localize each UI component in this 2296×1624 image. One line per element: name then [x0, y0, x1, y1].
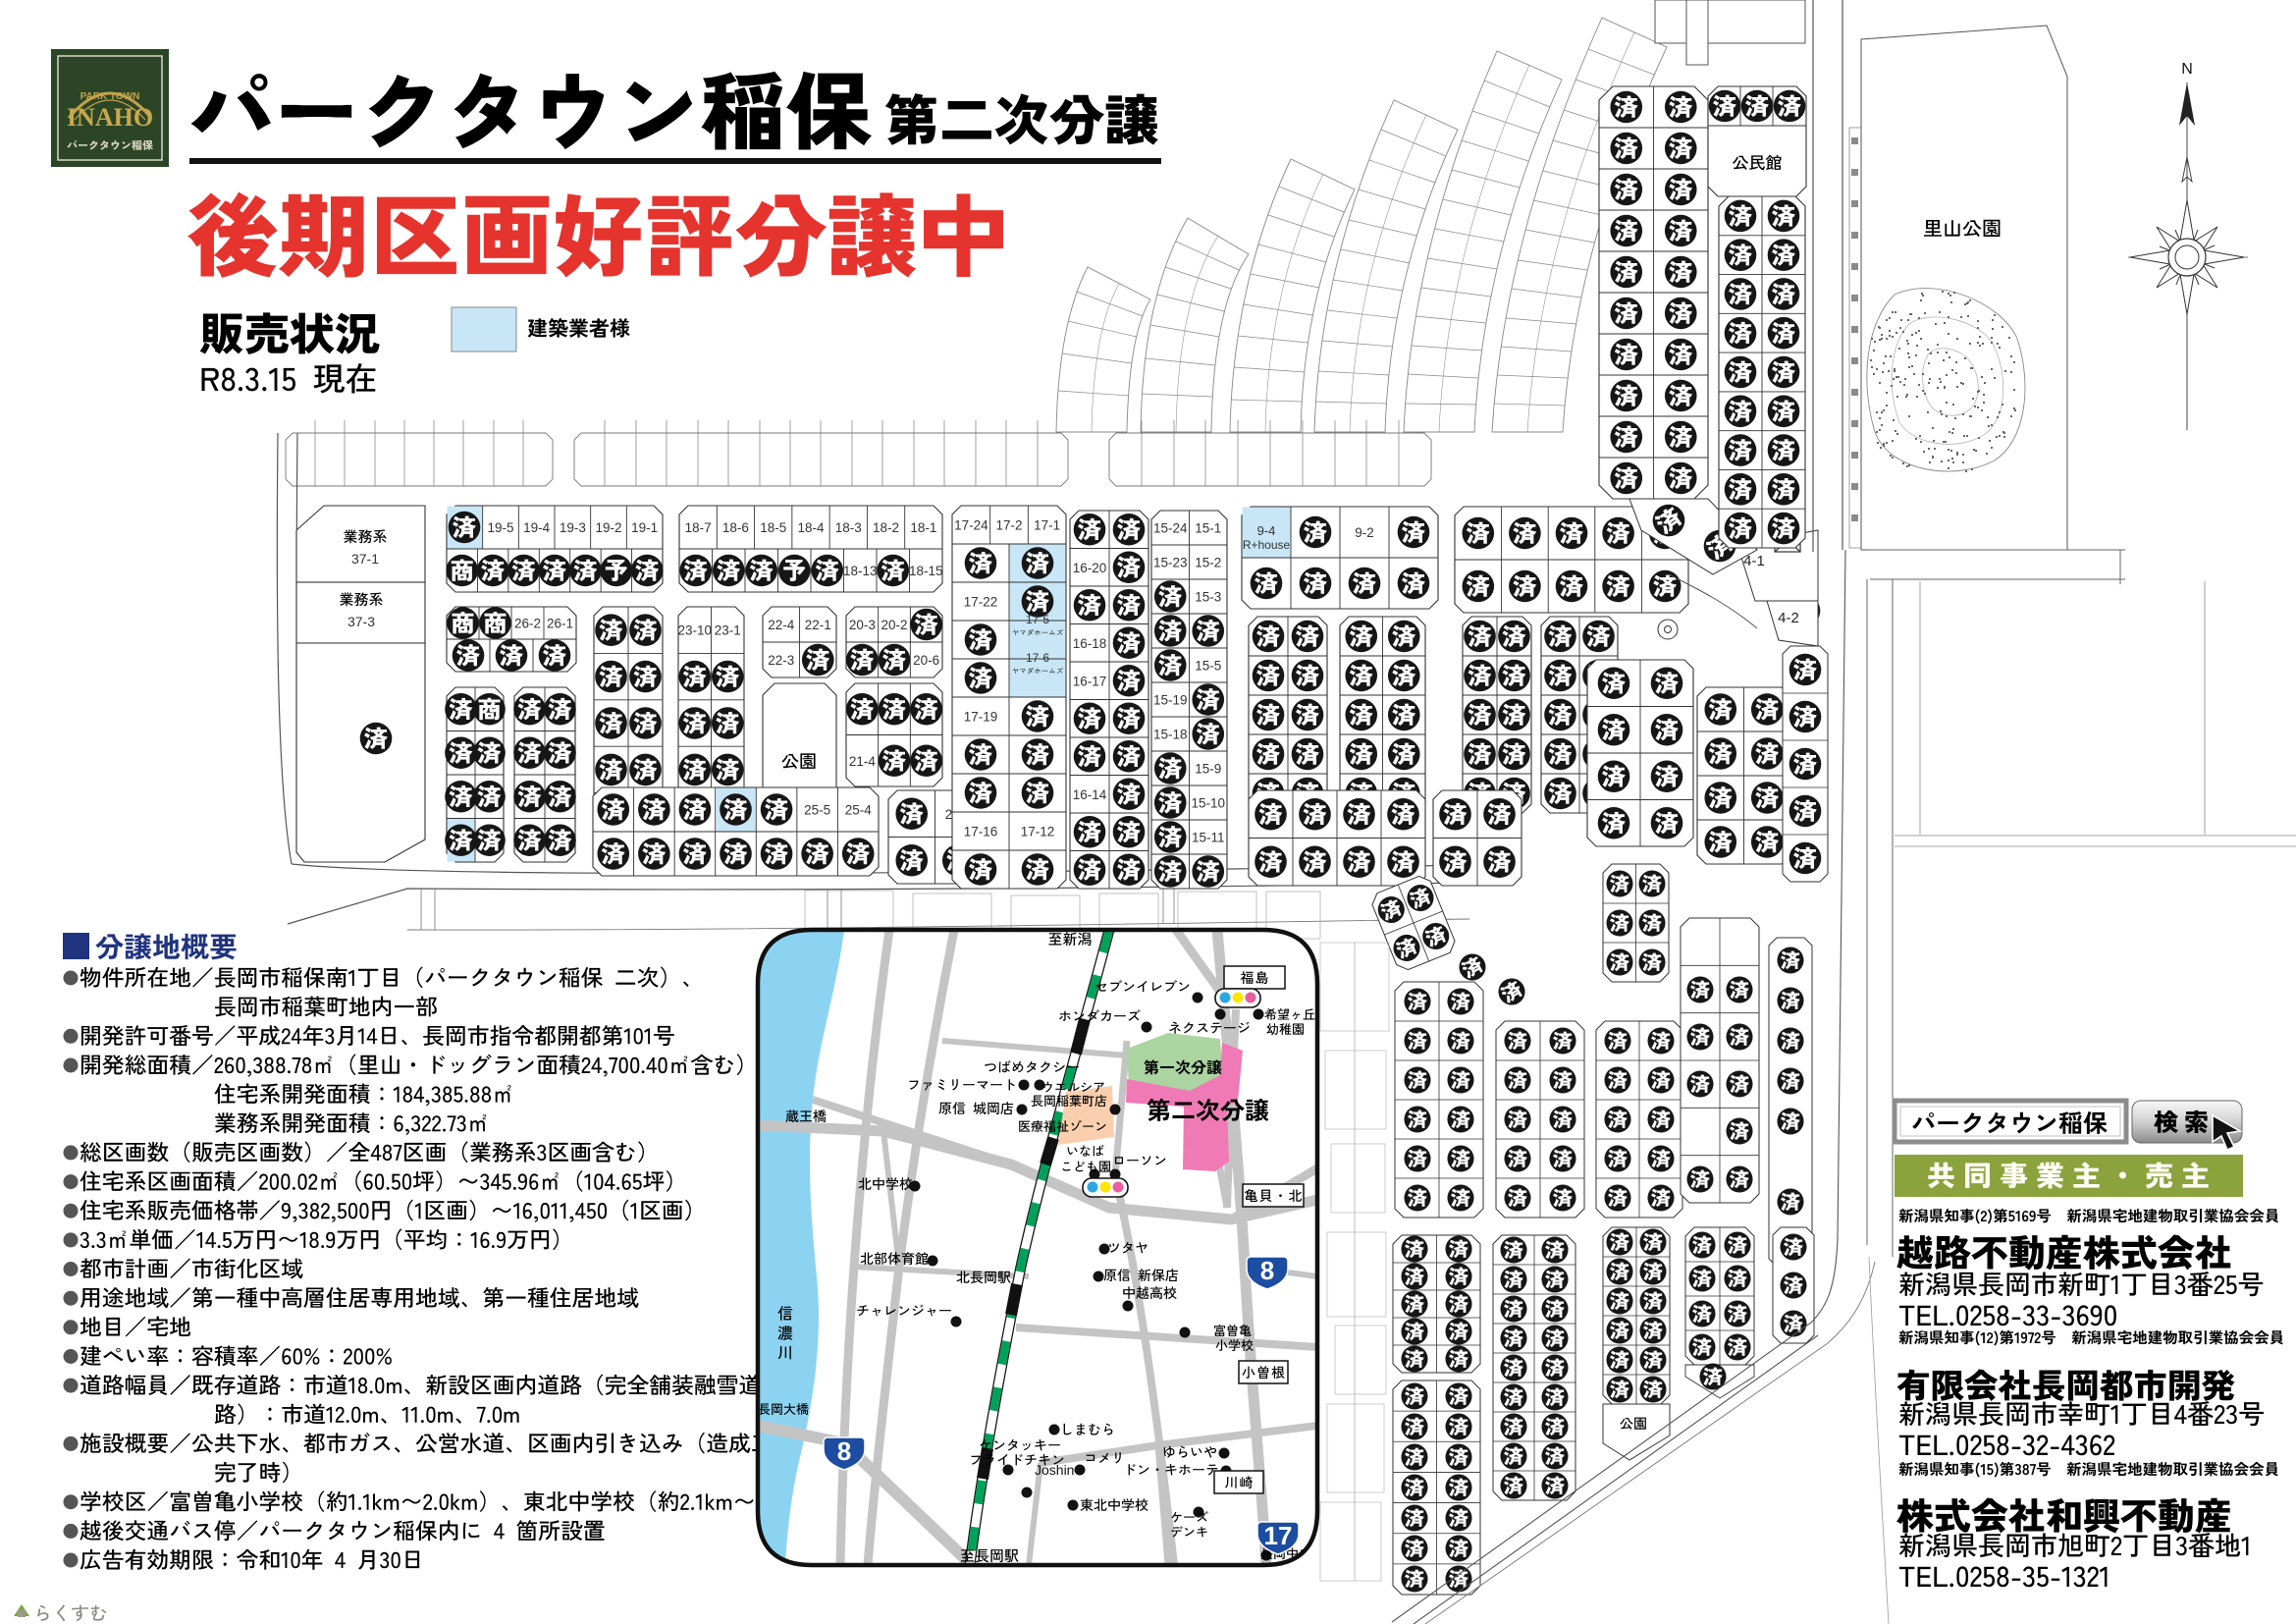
svg-text:18-3: 18-3 [835, 520, 862, 535]
svg-text:15-2: 15-2 [1195, 556, 1221, 570]
svg-text:19-1: 19-1 [631, 520, 658, 535]
svg-text:22-3: 22-3 [768, 653, 794, 668]
svg-text:18-15: 18-15 [909, 564, 943, 578]
svg-text:8: 8 [837, 1436, 851, 1466]
svg-text:16-14: 16-14 [1073, 787, 1107, 802]
svg-text:25-4: 25-4 [845, 803, 873, 818]
svg-text:15-1: 15-1 [1195, 521, 1221, 536]
svg-text:17-19: 17-19 [964, 710, 998, 725]
svg-text:37-3: 37-3 [347, 614, 375, 629]
svg-text:17-2: 17-2 [995, 518, 1022, 533]
svg-text:20-2: 20-2 [881, 618, 907, 632]
svg-text:20-3: 20-3 [849, 618, 876, 632]
svg-text:15-3: 15-3 [1195, 590, 1221, 605]
svg-text:20-6: 20-6 [913, 653, 939, 668]
svg-text:25-5: 25-5 [804, 803, 830, 818]
svg-text:19-4: 19-4 [523, 520, 551, 535]
svg-text:17-6: 17-6 [1026, 651, 1049, 665]
svg-text:21-4: 21-4 [849, 754, 877, 769]
svg-text:16-20: 16-20 [1073, 561, 1107, 575]
svg-text:N: N [2181, 61, 2193, 78]
svg-text:16-17: 16-17 [1073, 674, 1107, 688]
svg-text:15-19: 15-19 [1153, 693, 1188, 708]
svg-text:17-16: 17-16 [964, 825, 998, 839]
svg-text:37-1: 37-1 [351, 551, 379, 567]
svg-text:18-13: 18-13 [843, 564, 878, 578]
svg-text:22-4: 22-4 [768, 618, 795, 632]
svg-text:R+house: R+house [1243, 538, 1291, 552]
svg-text:15-9: 15-9 [1195, 762, 1221, 777]
svg-text:15-5: 15-5 [1195, 659, 1221, 674]
svg-text:4-2: 4-2 [1778, 610, 1799, 626]
svg-text:18-6: 18-6 [722, 520, 749, 535]
svg-text:Joshin: Joshin [1035, 1462, 1074, 1478]
svg-text:26-2: 26-2 [514, 617, 541, 631]
svg-text:18-5: 18-5 [760, 520, 786, 535]
svg-text:PARK TOWN: PARK TOWN [80, 91, 140, 102]
svg-text:INAHO: INAHO [67, 103, 153, 132]
svg-text:9-2: 9-2 [1355, 525, 1374, 540]
svg-text:16-18: 16-18 [1073, 636, 1107, 651]
svg-text:18-4: 18-4 [797, 520, 825, 535]
svg-text:8: 8 [1260, 1256, 1274, 1285]
svg-text:15-23: 15-23 [1153, 556, 1188, 570]
svg-text:26-1: 26-1 [547, 617, 573, 631]
svg-text:19-5: 19-5 [487, 520, 513, 535]
svg-text:15-18: 15-18 [1153, 728, 1188, 742]
svg-text:19-3: 19-3 [560, 520, 586, 535]
svg-text:15-24: 15-24 [1153, 521, 1188, 536]
svg-text:22-1: 22-1 [805, 618, 831, 632]
svg-text:17: 17 [1264, 1521, 1293, 1550]
svg-text:23-10: 23-10 [677, 623, 712, 638]
svg-text:17-5: 17-5 [1026, 613, 1049, 626]
svg-text:18-7: 18-7 [685, 520, 712, 535]
svg-text:23-1: 23-1 [715, 623, 741, 638]
svg-text:17-12: 17-12 [1021, 825, 1055, 839]
svg-text:18-1: 18-1 [910, 520, 936, 535]
svg-text:17-1: 17-1 [1034, 518, 1060, 533]
svg-text:15-11: 15-11 [1192, 831, 1225, 845]
svg-text:19-2: 19-2 [595, 520, 621, 535]
svg-text:18-2: 18-2 [873, 520, 899, 535]
svg-text:15-10: 15-10 [1191, 796, 1225, 811]
svg-text:17-22: 17-22 [964, 595, 998, 610]
svg-text:17-24: 17-24 [954, 518, 988, 533]
svg-text:9-4: 9-4 [1257, 523, 1276, 538]
